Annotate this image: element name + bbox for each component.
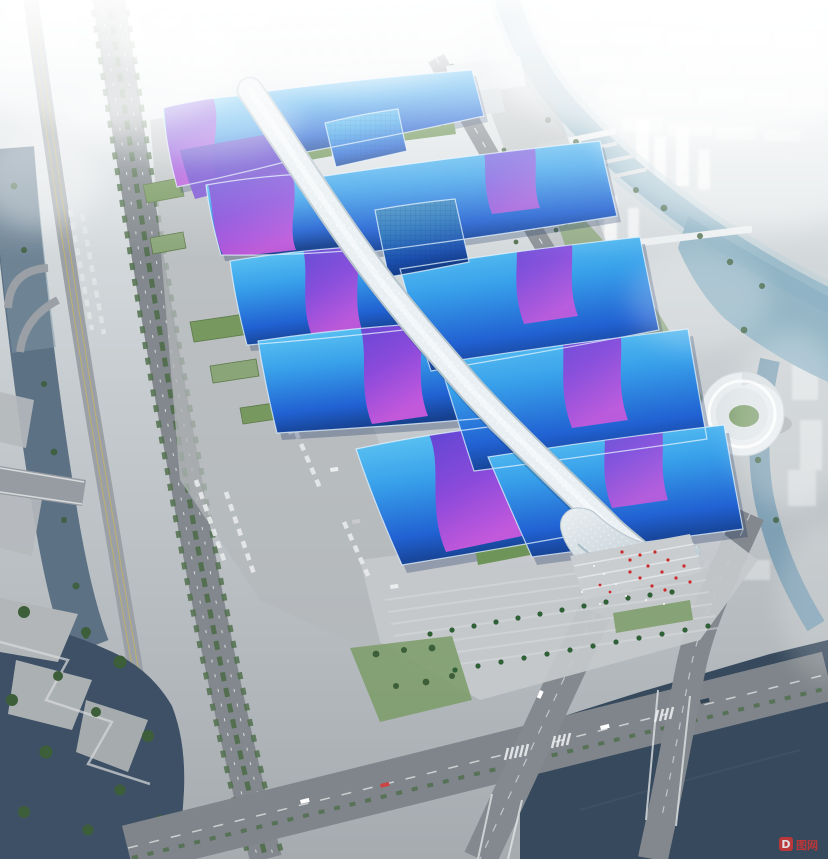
park-tree-clumps-sw-part [83,825,94,836]
palm-row-1-part [581,603,586,608]
palm-row-1-part [449,627,454,632]
lawn-trees-part [401,647,407,653]
red-sculpture-cluster-part [666,558,669,561]
palm-row-1-part [493,619,498,624]
aerial-rendering: D 图网 [0,0,828,859]
riverbank-trees-west-part [51,449,58,456]
palm-row-2-part [636,635,641,640]
palm-row-1-part [559,607,564,612]
palm-row-2-part [544,651,549,656]
palm-row-2-part [590,643,595,648]
people-dots-part [581,591,583,593]
red-sculpture-cluster-part [660,570,663,573]
people-dots-part [603,573,605,575]
lawn-trees-part [393,683,399,689]
people-dots-part [663,603,665,605]
palm-row-2-part [705,623,710,628]
red-sculpture-cluster-part [628,570,631,573]
park-tree-clumps-sw-part [114,656,127,669]
watermark-logo-letter: D [781,838,790,851]
park-tree-clumps-sw-part [142,730,154,742]
fog-overlays-part [630,250,770,350]
palm-row-1-part [669,589,674,594]
palm-row-2-part [567,647,572,652]
red-sculpture-cluster-part [688,580,691,583]
palm-row-2-part [659,631,664,636]
park-tree-clumps-sw-part [91,707,101,717]
people-dots-part [625,595,627,597]
park-tree-clumps-sw-part [40,746,53,759]
palm-row-2-part [521,655,526,660]
red-sculpture-cluster-part [646,564,649,567]
park-tree-clumps-sw-part [6,694,18,706]
park-tree-clumps-sw-part [53,671,63,681]
palm-row-1-part [537,611,542,616]
riverbank-trees-ne-part [773,517,779,523]
red-sculpture-cluster-part [663,588,666,591]
palm-row-2-part [452,667,457,672]
fog-overlays-part [60,80,300,160]
red-sculpture-cluster-part [682,564,685,567]
people-dots-part [645,599,647,601]
park-tree-clumps-sw-part [18,806,30,818]
red-sculpture-cluster-part [609,591,612,594]
people-dots-part [615,583,617,585]
park-tree-clumps-sw-part [81,627,91,637]
palm-row-2-part [682,627,687,632]
palm-row-2-part [498,659,503,664]
riverbank-trees-west-part [61,517,67,523]
lawn-trees-part [423,679,430,686]
people-dots-part [593,565,595,567]
red-sculpture-cluster-part [599,584,602,587]
park-tree-clumps-sw-part [115,785,126,796]
red-sculpture-cluster-part [620,550,623,553]
riverbank-trees-west-part [41,381,47,387]
people-dots-part [599,603,601,605]
red-sculpture-cluster-part [628,558,631,561]
watermark: D 图网 [779,837,818,852]
red-sculpture-cluster-part [653,550,656,553]
palm-row-1-part [515,615,520,620]
palm-row-2-part [475,663,480,668]
watermark-text: 图网 [796,839,818,852]
palm-row-1-part [603,599,608,604]
palm-row-1-part [647,592,652,597]
red-sculpture-cluster-part [650,584,653,587]
palm-row-1-part [471,623,476,628]
red-sculpture-cluster-part [674,576,677,579]
park-tree-clumps-sw-part [18,606,30,618]
lawn-trees-part [429,645,436,652]
red-sculpture-cluster-part [638,553,641,556]
red-sculpture-cluster-part [638,576,641,579]
palm-row-2-part [613,639,618,644]
lawn-trees-part [373,651,380,658]
lawn-trees-part [449,673,455,679]
palm-row-1-part [427,631,432,636]
scene-canvas: D 图网 [0,0,828,859]
riverbank-trees-west-part [72,582,79,589]
